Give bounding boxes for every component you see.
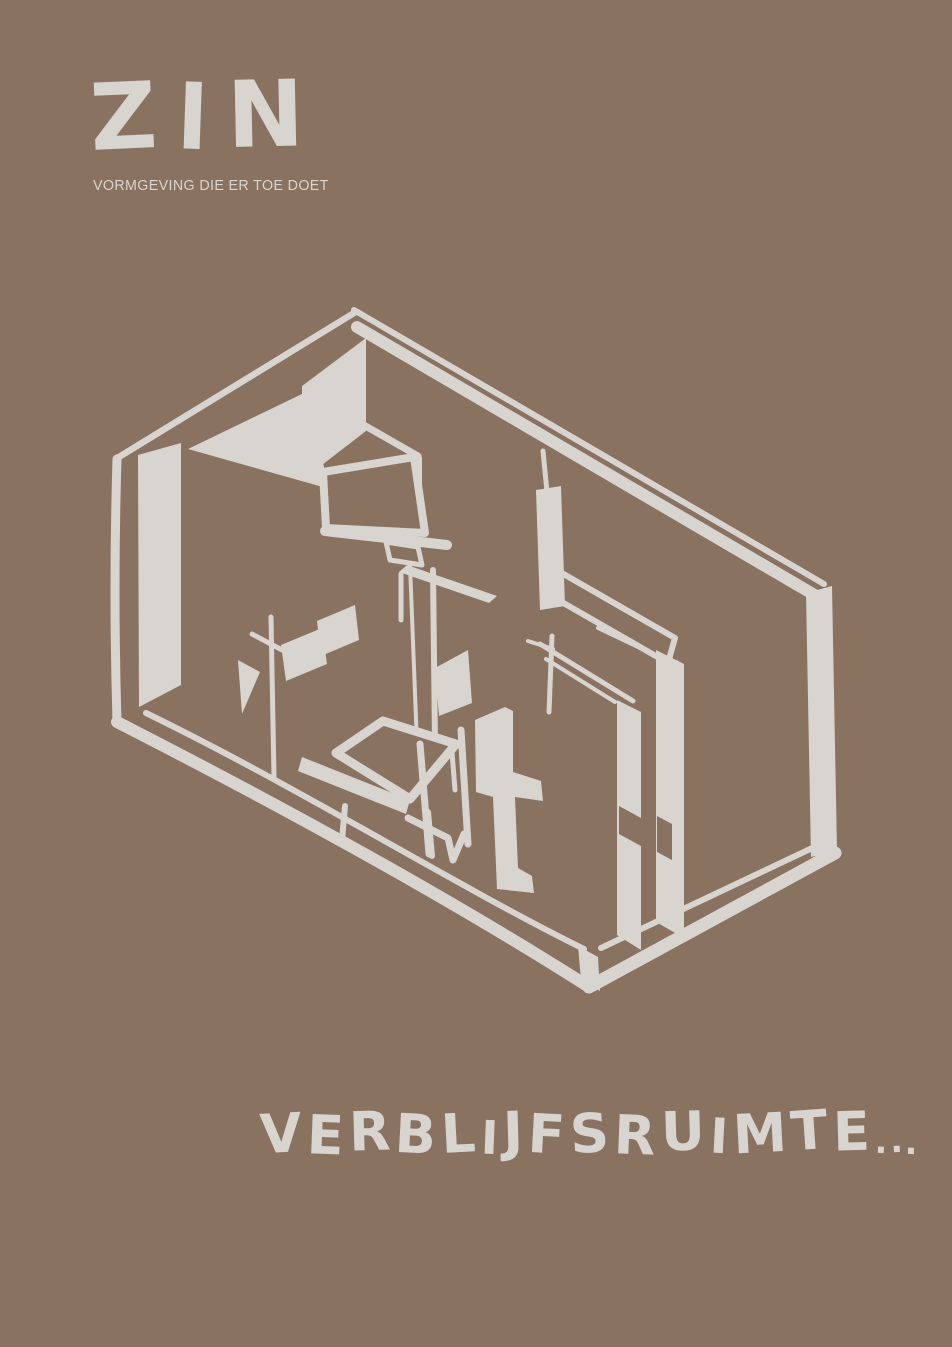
chair-backrest xyxy=(435,650,472,716)
table-and-chairs xyxy=(238,605,543,893)
lamp-stem xyxy=(543,451,547,492)
room-outline xyxy=(115,310,837,991)
poster-title: VERBLIJFSRUIMTE... xyxy=(260,1102,920,1165)
sideboard xyxy=(553,572,675,663)
poster-background: { "poster": { "background_color": "#8A72… xyxy=(0,0,952,1347)
white-chair xyxy=(475,707,543,893)
lamp-shade xyxy=(536,486,565,610)
tv-screen xyxy=(323,457,425,533)
